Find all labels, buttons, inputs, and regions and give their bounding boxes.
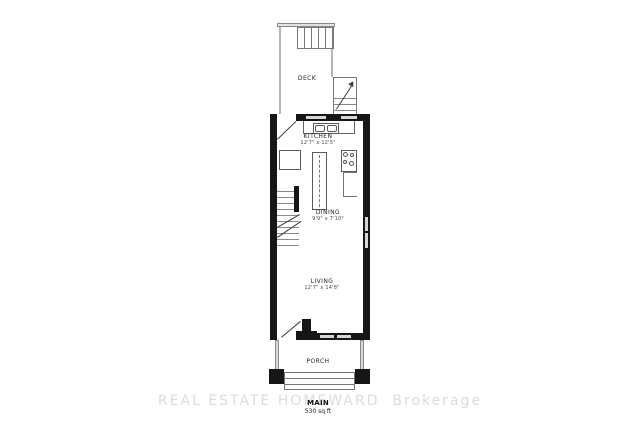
stove-burner	[343, 160, 347, 164]
kitchen-side-counter	[343, 172, 357, 197]
room-label-living: LIVING 12'7" x 14'8"	[300, 278, 344, 291]
floorplan-canvas: REAL ESTATE HOMEWARD Brokerage DECK	[0, 0, 640, 427]
floor-name-label: MAIN	[288, 399, 348, 407]
staircase-wall-edge	[294, 186, 299, 212]
porch-right-railing	[360, 340, 364, 372]
deck-left-railing	[279, 24, 281, 114]
dining-window-sill	[363, 231, 370, 233]
deck-top-stairs	[297, 27, 334, 49]
room-label-dining: DINING 9'9" x 7'10"	[306, 209, 350, 222]
sink-basin-right	[327, 125, 337, 132]
entry-closet-base	[296, 331, 317, 340]
floor-area-label: 530 sq ft	[288, 408, 348, 415]
room-label-kitchen: KITCHEN 12'7" x 12'5"	[296, 133, 340, 146]
living-window-1	[320, 333, 334, 340]
room-label-deck: DECK	[285, 75, 329, 82]
dining-dimensions: 9'9" x 7'10"	[306, 216, 350, 222]
porch-post-right	[355, 369, 370, 384]
wall-left	[270, 114, 277, 340]
living-window-2	[337, 333, 351, 340]
stove-burner	[350, 153, 354, 157]
porch-steps	[284, 372, 355, 390]
deck-door-opening	[277, 114, 296, 121]
refrigerator	[279, 150, 301, 170]
kitchen-window-1	[306, 114, 326, 121]
porch-left-railing	[275, 340, 279, 372]
kitchen-window-2	[341, 114, 357, 121]
deck-door-swing	[277, 121, 296, 140]
stove-burner	[349, 161, 354, 166]
island-centerline	[319, 155, 320, 207]
room-label-porch: PORCH	[296, 358, 340, 365]
living-name: LIVING	[300, 278, 344, 285]
deck-right-railing	[331, 49, 333, 77]
sink-basin-left	[315, 125, 325, 132]
kitchen-dimensions: 12'7" x 12'5"	[296, 140, 340, 146]
living-dimensions: 12'7" x 14'8"	[300, 285, 344, 291]
dining-name: DINING	[306, 209, 350, 216]
porch-post-left	[269, 369, 284, 384]
stove-burner	[343, 152, 348, 157]
kitchen-name: KITCHEN	[296, 133, 340, 140]
